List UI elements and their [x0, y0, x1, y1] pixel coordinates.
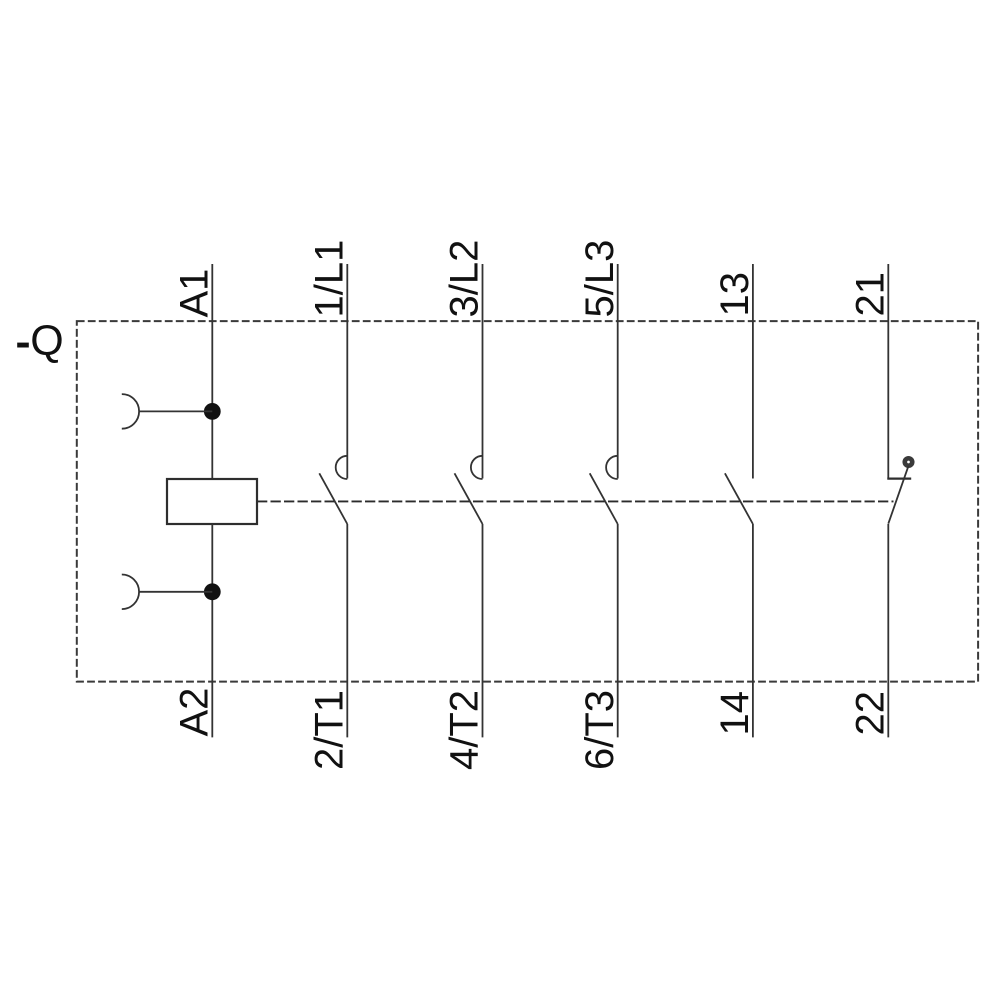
svg-text:4/T2: 4/T2: [443, 690, 487, 770]
svg-text:1/L1: 1/L1: [307, 240, 351, 318]
svg-text:22: 22: [848, 691, 892, 736]
svg-text:21: 21: [848, 272, 892, 317]
svg-text:13: 13: [713, 272, 757, 317]
svg-text:2/T1: 2/T1: [307, 690, 351, 770]
svg-text:6/T3: 6/T3: [578, 690, 622, 770]
svg-text:3/L2: 3/L2: [443, 240, 487, 318]
svg-text:14: 14: [713, 691, 757, 736]
svg-text:Q: Q: [30, 317, 63, 365]
svg-text:5/L3: 5/L3: [578, 240, 622, 318]
svg-text:A1: A1: [172, 269, 216, 318]
svg-text:A2: A2: [172, 688, 216, 737]
